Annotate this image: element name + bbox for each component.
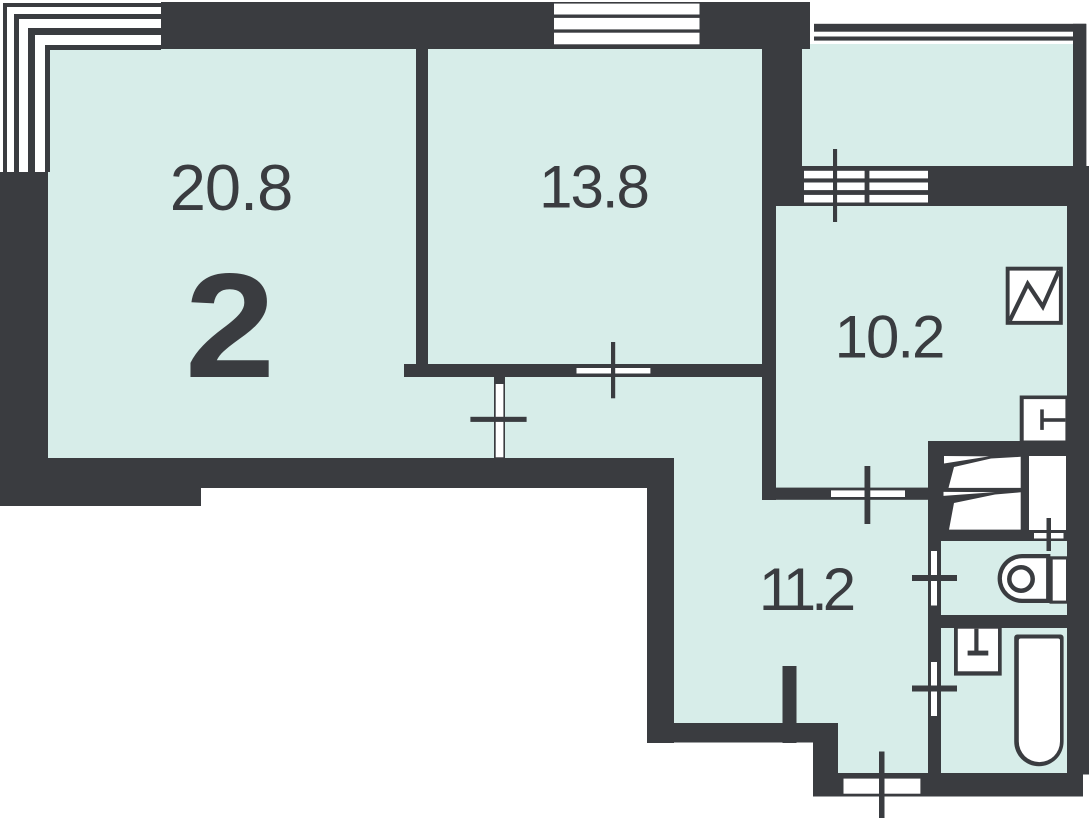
svg-text:10.2: 10.2 [835, 304, 944, 371]
svg-text:13.8: 13.8 [539, 154, 648, 221]
svg-text:2: 2 [185, 243, 275, 409]
svg-text:20.8: 20.8 [170, 151, 293, 224]
svg-text:11.2: 11.2 [759, 556, 854, 623]
